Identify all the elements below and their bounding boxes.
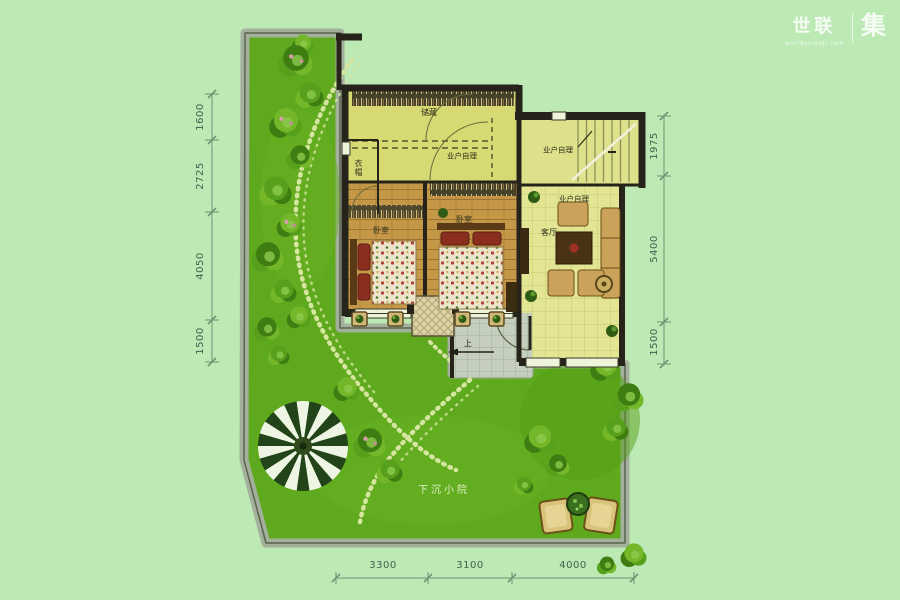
room-label-cloak: 衣帽: [354, 159, 362, 177]
closet: [348, 205, 423, 218]
dim-right-2: 5400: [650, 235, 660, 262]
room-label-storage: 储藏: [421, 109, 437, 117]
brand-name: 世联: [785, 12, 844, 38]
brand-url: worldunionji.com: [785, 40, 844, 47]
dim-bottom-3: 4000: [559, 561, 586, 571]
brand-logo: 世联 worldunionji.com 集: [785, 12, 886, 47]
annotation-2: 业户自理: [543, 146, 573, 154]
label-courtyard: 下沉小院: [418, 486, 470, 496]
room-label-bedroom1: 卧室: [373, 227, 389, 235]
parasol: [258, 401, 348, 491]
dim-bottom-2: 3100: [456, 561, 483, 571]
floorplan-page: 储藏 衣帽 卧室 卧室 客厅 上 下沉小院 业户自理 业户自理 业户自理 160…: [0, 0, 900, 600]
brand-unit: 集: [861, 12, 886, 40]
dim-left-3: 4050: [196, 252, 206, 279]
dim-right-1: 1975: [650, 132, 660, 159]
dim-left-4: 1500: [196, 327, 206, 354]
floorplan-graphic: [0, 0, 900, 600]
room-label-bedroom2: 卧室: [456, 216, 472, 224]
room-label-living: 客厅: [541, 229, 557, 237]
dim-left-2: 2725: [196, 162, 206, 189]
dim-bottom-1: 3300: [369, 561, 396, 571]
dim-right-3: 1500: [650, 328, 660, 355]
wardrobe: [430, 183, 516, 196]
storage-shelves: [352, 90, 514, 106]
logo-divider: [852, 13, 853, 43]
annotation-3: 业户自理: [559, 195, 589, 203]
dim-left-1: 1600: [196, 103, 206, 130]
label-up: 上: [464, 340, 472, 348]
annotation-1: 业户自理: [447, 152, 477, 160]
